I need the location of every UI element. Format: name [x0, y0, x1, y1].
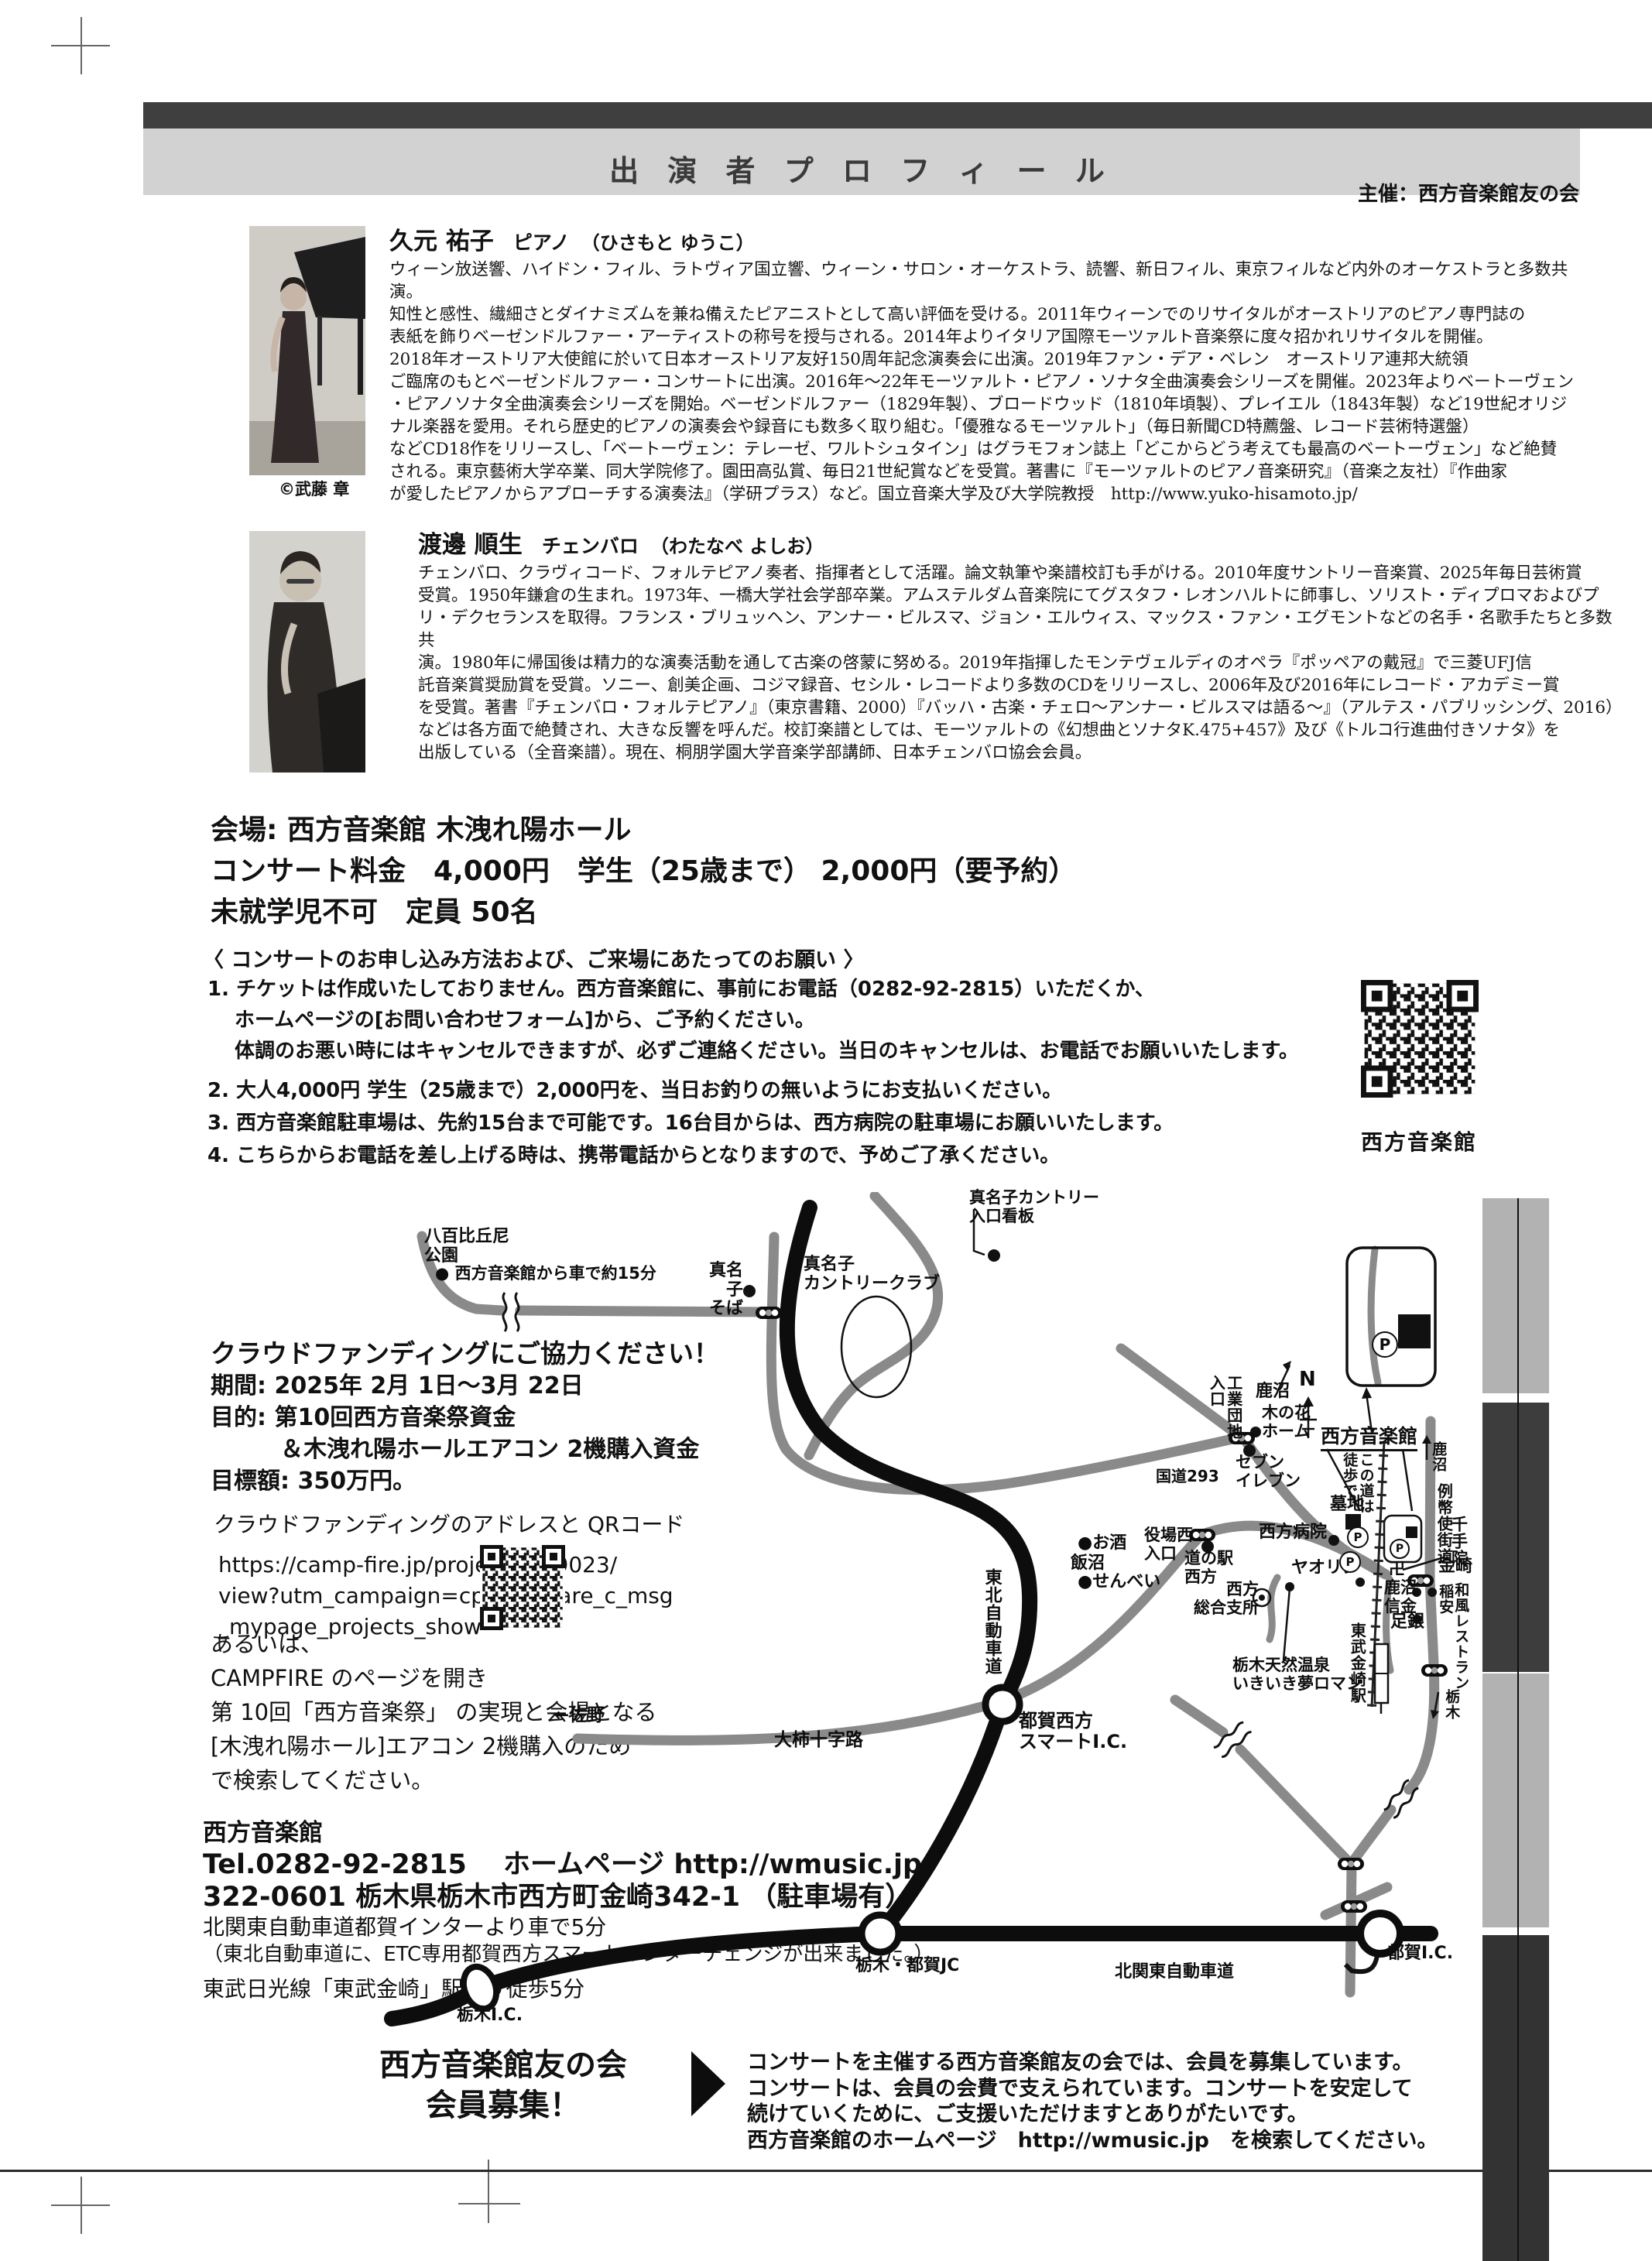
map-label-yakuba-nishi-entrance: 役場西 入口 — [1144, 1526, 1193, 1563]
profile-photo-hisamoto — [249, 226, 365, 475]
map-label-kanuma-direction: 鹿沼 — [1256, 1382, 1290, 1402]
harpsichordist-photo-illustration — [249, 531, 365, 773]
map-label-nishikata-music-hall: 西方音楽館 — [1321, 1426, 1417, 1451]
map-label-tochigi-ic: 栃木I.C. — [457, 2006, 523, 2026]
map-label-tsuga-ic: 都賀I.C. — [1387, 1944, 1453, 1964]
map-label-nishikata-hospital: 西方病院 — [1259, 1523, 1327, 1543]
parking-icon: P — [1339, 1551, 1361, 1573]
map-label-okaki-crossroads: 大柿十字路 — [774, 1731, 863, 1751]
performer-role: ピアノ — [513, 231, 570, 254]
print-bar — [1482, 1673, 1549, 1927]
flyer-page: { "header": { "title": "出 演 者 プ ロ フ ィ ー … — [0, 0, 1652, 2261]
performer-kana: （ひさもと ゆうこ） — [581, 232, 755, 254]
map-label-tochigi-tsuga-jc: 栃木・都賀JC — [855, 1957, 959, 1976]
organizer-line: 主催：西方音楽館友の会 — [1122, 178, 1579, 207]
crowdfunding-qr-code — [480, 1545, 565, 1630]
map-label-tochigi-direction: 栃木 — [1443, 1689, 1459, 1720]
map-label-senbei-shop: ●せんべい — [1078, 1573, 1160, 1592]
map-label-drive-15min: ● 西方音楽館から車で約15分 — [435, 1265, 656, 1283]
performer-role: チェンバロ — [542, 535, 639, 557]
map-label-sake-shop: ●お酒 — [1078, 1534, 1126, 1554]
map-label-nishikata-branch-office: 西方 総合支所 — [1184, 1581, 1259, 1617]
recruit-body: コンサートを主催する西方音楽館友の会では、会員を募集しています。 コンサートは、… — [747, 2050, 1498, 2153]
map-label-iinuma: 飯沼 — [1071, 1554, 1105, 1574]
map-label-wafu-restaurant: 和風レストラン — [1452, 1582, 1469, 1745]
map-label-konohana-home: 木の花 ホーム — [1262, 1404, 1311, 1441]
map-label-manago-country-club: 真名子 カントリークラブ — [804, 1256, 940, 1293]
map-label-kanuma-direction-2: 鹿沼 — [1430, 1441, 1446, 1472]
bottom-rule — [0, 2170, 1652, 2172]
parking-icon: P — [1390, 1539, 1410, 1559]
map-label-entrance-signboard: 真名子カントリー 入口看板 — [969, 1189, 1099, 1225]
venue-info: 会場: 西方音楽館 木洩れ陽ホール コンサート料金 4,000円 学生（25歳ま… — [211, 810, 1076, 933]
map-label-tsuga-nishikata-smart-ic: 都賀西方 スマートI.C. — [1019, 1711, 1127, 1752]
performer-bio-watanabe: チェンバロ、クラヴィコード、フォルテピアノ奏者、指揮者として活躍。論文執筆や楽譜… — [418, 562, 1624, 764]
performer-name: 渡邊 順生 — [418, 531, 523, 559]
parking-icon: P — [1347, 1526, 1369, 1548]
map-label-kanuma-shinkin: 鹿沼 信金 — [1384, 1579, 1417, 1615]
notice-item-1: 1. チケットは作成いたしておりません。西方音楽館に、事前にお電話（0282-9… — [207, 974, 1353, 1067]
print-bar — [1482, 1935, 1549, 2261]
print-bar — [1482, 1403, 1549, 1672]
notice-heading: 〈 コンサートのお申し込み方法および、ご来場にあたってのお願い 〉 — [203, 943, 864, 973]
performer-kana: （わたなべ よしお） — [650, 536, 824, 557]
map-label-kanasaki: 金崎 — [1438, 1557, 1472, 1577]
header-top-stripe — [143, 102, 1652, 128]
notice-item-3: 3. 西方音楽館駐車場は、先約15台まで可能です。16台目からは、西方病院の駐車… — [207, 1107, 1174, 1136]
arrow-right-icon — [691, 2051, 725, 2116]
profile-photo-watanabe — [249, 531, 365, 773]
parking-icon: P — [1372, 1331, 1398, 1358]
pianist-photo-illustration — [249, 226, 365, 475]
map-label-route-293: 国道293 — [1153, 1468, 1222, 1485]
temple-icon: 卍 — [1389, 1560, 1405, 1579]
map-label-sano-direction: ←佐野 — [554, 1706, 605, 1726]
map-label-ashigin-bank: 足銀 — [1390, 1613, 1424, 1632]
map-label-manago-soba: 真名子 そば — [695, 1262, 743, 1319]
photo-credit: ©武藤 章 — [279, 477, 349, 500]
map-label-cemetery: 墓地 — [1330, 1495, 1364, 1515]
trim-mark — [51, 45, 110, 46]
notice-item-4: 4. こちらからお電話を差し上げる時は、携帯電話からとなりますので、予めご了承く… — [207, 1139, 1060, 1168]
trim-mark — [51, 2204, 110, 2206]
map-label-kitakanto-expressway: 北関東自動車道 — [1115, 1963, 1234, 1982]
profile-name-row-hisamoto: 久元 祐子 ピアノ （ひさもと ゆうこ） — [389, 221, 755, 256]
recruit-title: 西方音楽館友の会 会員募集！ — [364, 2045, 643, 2126]
booking-qr-code — [1361, 980, 1479, 1098]
booking-qr-label: 西方音楽館 — [1342, 1125, 1496, 1156]
map-label-north-indicator: N — [1299, 1369, 1316, 1391]
profile-name-row-watanabe: 渡邊 順生 チェンバロ （わたなべ よしお） — [418, 525, 824, 560]
performer-name: 久元 祐子 — [389, 228, 494, 255]
map-label-tobu-kanasaki-station: 東武金崎駅 — [1349, 1622, 1366, 1711]
performer-bio-hisamoto: ウィーン放送響、ハイドン・フィル、ラトヴィア国立響、ウィーン・サロン・オーケスト… — [389, 259, 1578, 505]
print-bar — [1482, 1198, 1549, 1393]
map-label-inayasu: 稲安 — [1437, 1584, 1453, 1615]
map-label-yaohikuni-park: 八百比丘尼 公園 — [424, 1228, 509, 1266]
map-label-tohoku-expressway: 東北自動車道 — [982, 1568, 1001, 1746]
notice-item-2: 2. 大人4,000円 学生（25歳まで）2,000円を、当日お釣りの無いように… — [207, 1074, 1062, 1103]
map-label-onsen-yume-roman: 栃木天然温泉 いきいき夢ロマン — [1232, 1656, 1362, 1693]
trim-mark — [458, 2203, 520, 2204]
print-bar-line — [1517, 1198, 1519, 2261]
map-label-seven-eleven: セブン イレブン — [1236, 1454, 1301, 1490]
